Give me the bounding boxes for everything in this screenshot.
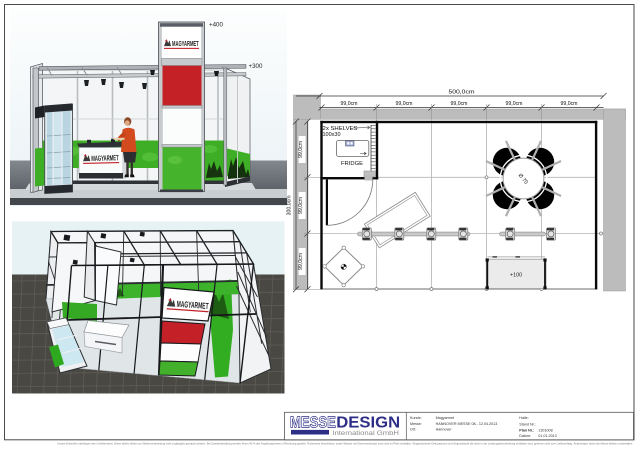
svg-text:International GmbH: International GmbH (332, 430, 399, 437)
svg-text:Ort:: Ort: (410, 427, 416, 431)
svg-text:+300: +300 (249, 63, 263, 70)
svg-text:Magyarmet: Magyarmet (436, 416, 454, 420)
svg-text:Unsere Entwürfe unterliegen de: Unsere Entwürfe unterliegen dem Urheberr… (57, 441, 633, 445)
svg-text:1301008: 1301008 (538, 429, 552, 433)
svg-text:+400: +400 (209, 22, 223, 29)
svg-text:99,0cm: 99,0cm (298, 141, 304, 158)
svg-text:01.01.2013: 01.01.2013 (538, 434, 556, 438)
svg-text:99,0cm: 99,0cm (395, 101, 412, 107)
svg-text:HANNOVER MESSE 08.- 12.04.201: HANNOVER MESSE 08.- 12.04.2013 (436, 422, 498, 426)
svg-text:Messe:: Messe: (410, 422, 422, 426)
svg-text:MESSE: MESSE (290, 414, 336, 431)
svg-text:Plan Nr.:: Plan Nr.: (519, 429, 534, 433)
svg-text:+100: +100 (510, 272, 522, 278)
svg-text:99,0cm: 99,0cm (298, 253, 304, 270)
svg-text:100x30: 100x30 (323, 132, 341, 138)
svg-text:Stand Nr.:: Stand Nr.: (519, 422, 535, 426)
svg-text:Kunde:: Kunde: (410, 416, 422, 420)
svg-text:300,0cm: 300,0cm (287, 195, 293, 215)
svg-text:Halle:: Halle: (519, 416, 528, 420)
svg-text:MAGYARMET: MAGYARMET (172, 39, 199, 48)
svg-text:MAGYARMET: MAGYARMET (91, 153, 119, 163)
svg-text:500,0cm: 500,0cm (449, 90, 475, 96)
svg-text:99,0cm: 99,0cm (560, 101, 577, 107)
svg-text:FRIDGE: FRIDGE (341, 161, 363, 167)
svg-text:99,0cm: 99,0cm (340, 101, 357, 107)
svg-text:99,0cm: 99,0cm (298, 197, 304, 214)
svg-text:Hannover: Hannover (436, 427, 453, 431)
svg-text:99,0cm: 99,0cm (505, 101, 522, 107)
svg-text:Datum:: Datum: (519, 434, 531, 438)
svg-text:DESIGN: DESIGN (336, 414, 400, 431)
svg-text:99,0cm: 99,0cm (450, 101, 467, 107)
